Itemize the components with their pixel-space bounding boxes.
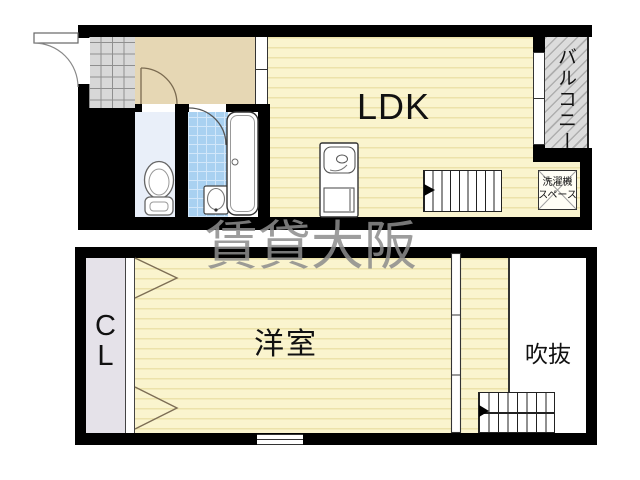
- entrance-door-arc: [34, 43, 78, 87]
- bathtub: [227, 112, 258, 215]
- toilet-bowl-inner: [149, 169, 169, 195]
- lower-stair-arrow: [479, 405, 489, 417]
- upper-stair-arrow: [424, 184, 435, 196]
- closet-label: C L: [86, 311, 125, 371]
- toilet-tank-inner: [150, 202, 168, 211]
- floor-plan: LDK バルコニー 洗濯機 スペース C L 洋室 吹抜 賃貸大阪: [0, 0, 640, 480]
- watermark: 賃貸大阪: [205, 204, 417, 280]
- bathroom-door-arc: [189, 108, 226, 145]
- laundry-space-label: 洗濯機 スペース: [538, 176, 577, 202]
- balcony-label: バルコニー: [552, 47, 579, 152]
- ldk-label: LDK: [357, 86, 430, 128]
- sliding-partition: [452, 254, 461, 433]
- kitchen-faucet: [337, 155, 348, 163]
- entrance-door-leaf: [34, 33, 78, 43]
- western-room-label: 洋室: [254, 319, 318, 363]
- closet-chevron-top: [135, 258, 177, 298]
- toilet-door-arc: [141, 68, 177, 104]
- closet-chevron-bottom: [135, 387, 177, 429]
- void-label: 吹抜: [525, 335, 571, 369]
- bathtub-drain: [232, 159, 238, 165]
